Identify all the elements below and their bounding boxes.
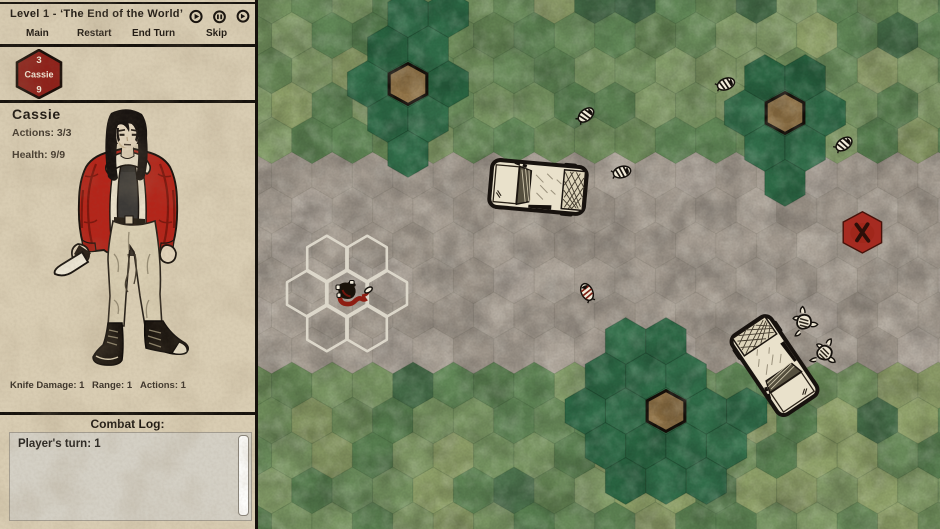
svg-text:Cassie: Cassie [24,70,53,80]
svg-text:3: 3 [36,55,41,66]
svg-text:9: 9 [36,85,41,96]
